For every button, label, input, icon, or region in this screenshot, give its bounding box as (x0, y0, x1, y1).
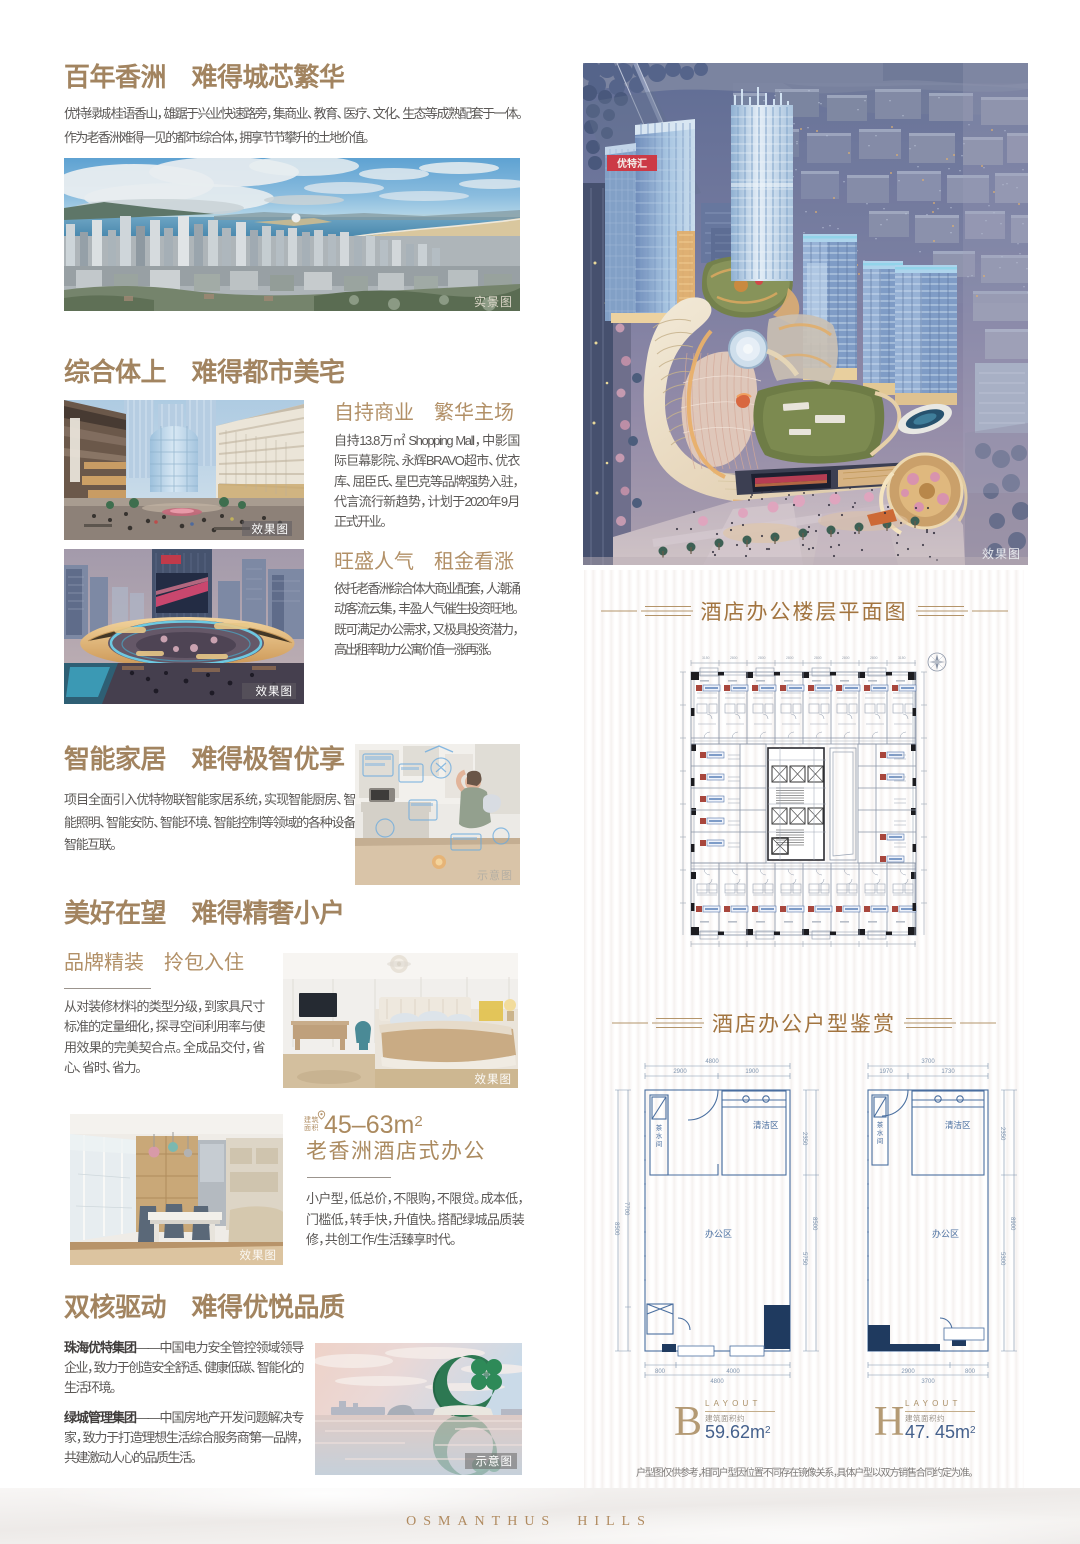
svg-text:效果图: 效果图 (252, 522, 290, 536)
svg-text:效果图: 效果图 (240, 1248, 278, 1262)
svg-text:800: 800 (655, 1369, 666, 1375)
svg-text:4800: 4800 (705, 1059, 719, 1065)
svg-text:水: 水 (877, 1128, 884, 1137)
svg-text:3150: 3150 (702, 656, 710, 660)
svg-text:效果图: 效果图 (475, 1072, 513, 1086)
svg-text:2900: 2900 (673, 1069, 687, 1075)
svg-text:4800: 4800 (710, 1379, 724, 1385)
svg-text:清洁区: 清洁区 (753, 1120, 779, 1130)
svg-text:1900: 1900 (745, 1069, 759, 1075)
svg-text:3700: 3700 (921, 1379, 935, 1385)
svg-text:8900: 8900 (1009, 1217, 1015, 1231)
svg-text:2800: 2800 (758, 656, 766, 660)
svg-text:2800: 2800 (786, 656, 794, 660)
svg-text:优特汇: 优特汇 (617, 157, 647, 170)
svg-text:5300: 5300 (999, 1252, 1005, 1266)
svg-text:茶: 茶 (877, 1120, 884, 1129)
svg-text:3150: 3150 (898, 656, 906, 660)
svg-text:8500: 8500 (613, 1222, 619, 1236)
svg-text:5750: 5750 (801, 1252, 807, 1266)
svg-text:2800: 2800 (730, 656, 738, 660)
svg-text:实景图: 实景图 (474, 294, 513, 309)
svg-text:2350: 2350 (801, 1132, 807, 1146)
svg-text:7700: 7700 (623, 1202, 629, 1216)
svg-text:茶: 茶 (656, 1123, 663, 1132)
svg-text:1970: 1970 (879, 1069, 893, 1075)
svg-text:8500: 8500 (811, 1217, 817, 1231)
svg-text:800: 800 (965, 1369, 976, 1375)
svg-text:水: 水 (656, 1131, 663, 1140)
svg-text:1730: 1730 (941, 1069, 955, 1075)
svg-text:2350: 2350 (999, 1127, 1005, 1141)
svg-text:4000: 4000 (726, 1369, 740, 1375)
svg-text:2800: 2800 (814, 656, 822, 660)
svg-text:2900: 2900 (901, 1369, 915, 1375)
svg-text:效果图: 效果图 (256, 684, 294, 698)
svg-text:间: 间 (656, 1140, 663, 1148)
svg-text:示意图: 示意图 (476, 1454, 514, 1468)
svg-text:3700: 3700 (921, 1059, 935, 1065)
svg-text:2800: 2800 (870, 656, 878, 660)
svg-text:清洁区: 清洁区 (945, 1120, 971, 1130)
svg-text:示意图: 示意图 (477, 868, 513, 882)
svg-text:办公区: 办公区 (705, 1228, 732, 1239)
svg-text:2800: 2800 (842, 656, 850, 660)
svg-text:办公区: 办公区 (932, 1228, 959, 1239)
svg-text:效果图: 效果图 (982, 546, 1021, 561)
svg-text:间: 间 (877, 1137, 884, 1145)
